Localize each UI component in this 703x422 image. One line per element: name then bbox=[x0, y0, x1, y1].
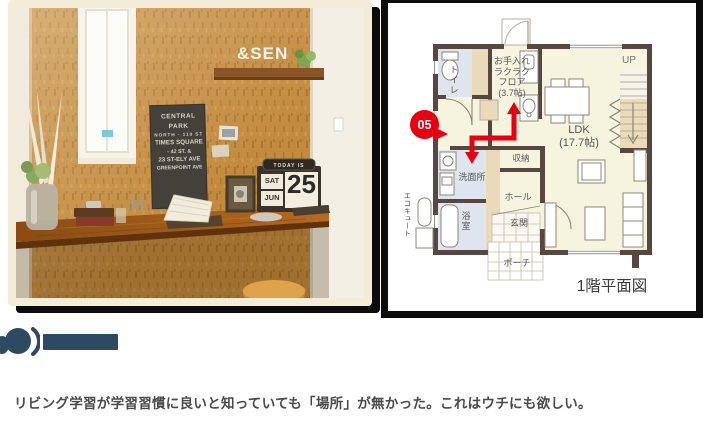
label-ldk: LDK (17.7帖) bbox=[538, 124, 620, 150]
light-switch bbox=[334, 118, 343, 131]
label-storage: 収納 bbox=[500, 153, 542, 163]
label-water-heater: エコキュート bbox=[402, 192, 411, 237]
cd-disc bbox=[250, 213, 282, 222]
label-toilet: トイレ bbox=[448, 65, 459, 95]
floor-plan: トイレ お手入れ ラクラク フロア (3.7帖) UP LDK (17.7帖) … bbox=[381, 0, 703, 318]
window-sticker bbox=[102, 130, 113, 137]
perpetual-calendar bbox=[257, 159, 321, 212]
label-entrance: 玄関 bbox=[496, 218, 542, 229]
chalkboard-sign bbox=[150, 104, 208, 208]
tall-unit bbox=[634, 150, 646, 181]
photo-frame-small bbox=[227, 177, 254, 211]
glass-cup bbox=[116, 208, 126, 223]
voice-label-block bbox=[43, 334, 118, 350]
floor-plan-drawing bbox=[388, 3, 696, 311]
low-table bbox=[585, 207, 605, 240]
bathtub bbox=[441, 205, 458, 247]
cabinet bbox=[480, 100, 498, 120]
label-bath: 浴室 bbox=[460, 211, 471, 231]
ecocute-unit bbox=[416, 228, 433, 248]
label-washroom: 洗面所 bbox=[445, 172, 499, 183]
interior-photo: CENTRAL PARK NORTH - 110 ST TIMES SQUARE… bbox=[8, 0, 372, 306]
label-stairs-up: UP bbox=[622, 55, 636, 67]
label-porch: ポーチ bbox=[492, 258, 542, 269]
sofa bbox=[623, 193, 643, 247]
window bbox=[78, 8, 136, 164]
toilet-tank bbox=[442, 52, 458, 60]
voice-icon bbox=[0, 324, 40, 360]
back-door bbox=[502, 19, 530, 45]
number-badge: 05 bbox=[410, 110, 439, 139]
dining-table bbox=[545, 87, 589, 115]
interior-photo-art bbox=[16, 8, 364, 298]
page: CENTRAL PARK NORTH - 110 ST TIMES SQUARE… bbox=[0, 0, 703, 422]
label-hall: ホール bbox=[494, 192, 542, 203]
label-utility-floor: お手入れ ラクラク フロア (3.7帖) bbox=[482, 56, 542, 98]
ecocute-tank bbox=[418, 198, 431, 226]
tv-board bbox=[545, 203, 556, 247]
floor-plan-title: 1階平面図 bbox=[548, 274, 676, 296]
comment-text: リビング学習が学習習慣に良いと知っていても「場所」が無かった。これはウチにも欲し… bbox=[14, 392, 694, 412]
